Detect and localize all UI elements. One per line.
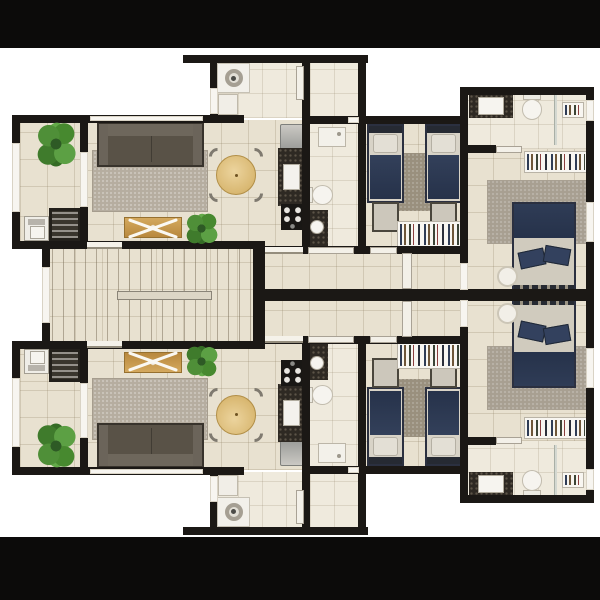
plant [36, 118, 76, 170]
corridor-opening [265, 247, 303, 254]
wall-segment [462, 495, 594, 503]
wall-segment [462, 87, 594, 95]
coffee-bench [124, 217, 182, 238]
bathroom-door [308, 247, 354, 254]
bedside-table [497, 303, 518, 324]
master-window [586, 348, 594, 388]
master-door-opening [460, 300, 468, 327]
bed-ottoman [372, 202, 399, 232]
stove [281, 204, 304, 230]
ensuite-window [586, 100, 594, 121]
service-cabinet [218, 475, 238, 496]
laundry-rack [49, 349, 81, 382]
unit-entry-opening [87, 242, 122, 249]
service-window [210, 476, 218, 502]
shower-shelf [562, 102, 584, 118]
plant [36, 420, 76, 472]
kitchen-sink [283, 400, 300, 426]
plant [184, 211, 219, 246]
coffee-bench [124, 352, 182, 373]
service-cabinet [218, 94, 238, 115]
twin-bedroom-door [370, 336, 397, 343]
service-window [210, 88, 218, 114]
balcony-door-opening [80, 152, 88, 207]
corridor-door-leaf [402, 301, 412, 337]
wall-segment [358, 57, 366, 253]
ensuite-vanity [469, 94, 513, 118]
wall-segment [466, 437, 496, 445]
balcony-window [12, 143, 20, 212]
bathroom-door [308, 336, 354, 343]
bed-ottoman [372, 358, 399, 388]
wall-segment [208, 115, 244, 123]
kitchen-sink [283, 164, 300, 190]
shower-shelf [562, 472, 584, 488]
double-bed [512, 202, 576, 295]
stair-rail [117, 291, 212, 300]
washing-machine [24, 216, 49, 241]
ensuite-toilet [519, 470, 545, 497]
bathroom-top-door [348, 467, 359, 473]
corridor-door-leaf [402, 253, 412, 289]
shower-tray [318, 127, 346, 147]
sofa [97, 122, 204, 167]
twin-bed [367, 387, 404, 466]
wall-segment [460, 296, 468, 503]
dining-table-set [213, 392, 259, 438]
service-door-leaf [296, 66, 304, 100]
wall-segment [253, 295, 265, 349]
bookshelf [397, 342, 462, 369]
staircase [52, 248, 253, 341]
living-window [90, 116, 203, 121]
bathroom-top-door [348, 117, 359, 123]
wall-segment [253, 289, 594, 301]
twin-bed [425, 387, 462, 466]
ac-unit [217, 497, 250, 527]
wall-segment [183, 527, 368, 535]
letterbox-bar [0, 0, 600, 48]
stair-hall-window [42, 267, 50, 323]
sofa [97, 423, 204, 468]
service-door-leaf [296, 490, 304, 524]
twin-bed [367, 124, 404, 203]
stove [281, 360, 304, 386]
wall-segment [358, 337, 366, 533]
wardrobe [524, 151, 588, 173]
twin-bed [425, 124, 462, 203]
balcony-window [12, 378, 20, 447]
letterbox-bar [0, 537, 600, 600]
shower-glass [554, 445, 557, 495]
laundry-rack [49, 208, 81, 241]
washing-machine [24, 349, 49, 374]
corridor-opening [265, 336, 303, 343]
unit-entry-opening [87, 341, 122, 348]
living-window [90, 469, 203, 474]
wall-segment [466, 145, 496, 153]
balcony-door-opening [80, 383, 88, 438]
refrigerator [280, 440, 304, 466]
ceiling-fan-icon [126, 344, 180, 380]
wall-segment [358, 466, 468, 474]
ac-unit [217, 63, 250, 93]
floor-plan [0, 0, 600, 600]
master-door-opening [460, 263, 468, 290]
twin-bedroom-door [370, 247, 397, 254]
plant [184, 344, 219, 379]
ensuite-window [586, 469, 594, 490]
bookshelf [397, 221, 462, 248]
refrigerator [280, 124, 304, 150]
corridor-floor [255, 296, 468, 338]
shower-tray [318, 443, 346, 463]
wall-segment [208, 467, 244, 475]
toilet [306, 385, 333, 405]
wall-segment [358, 116, 468, 124]
ensuite-door [496, 437, 522, 444]
bedside-table [497, 266, 518, 287]
wall-segment [253, 241, 265, 295]
double-bed [512, 295, 576, 388]
shower-glass [554, 95, 557, 145]
toilet [306, 185, 333, 205]
ensuite-vanity [469, 472, 513, 496]
ensuite-toilet [519, 93, 545, 120]
master-window [586, 202, 594, 242]
ensuite-door [496, 146, 522, 153]
dining-table-set [213, 152, 259, 198]
wardrobe [524, 417, 588, 439]
corridor-floor [255, 252, 468, 294]
